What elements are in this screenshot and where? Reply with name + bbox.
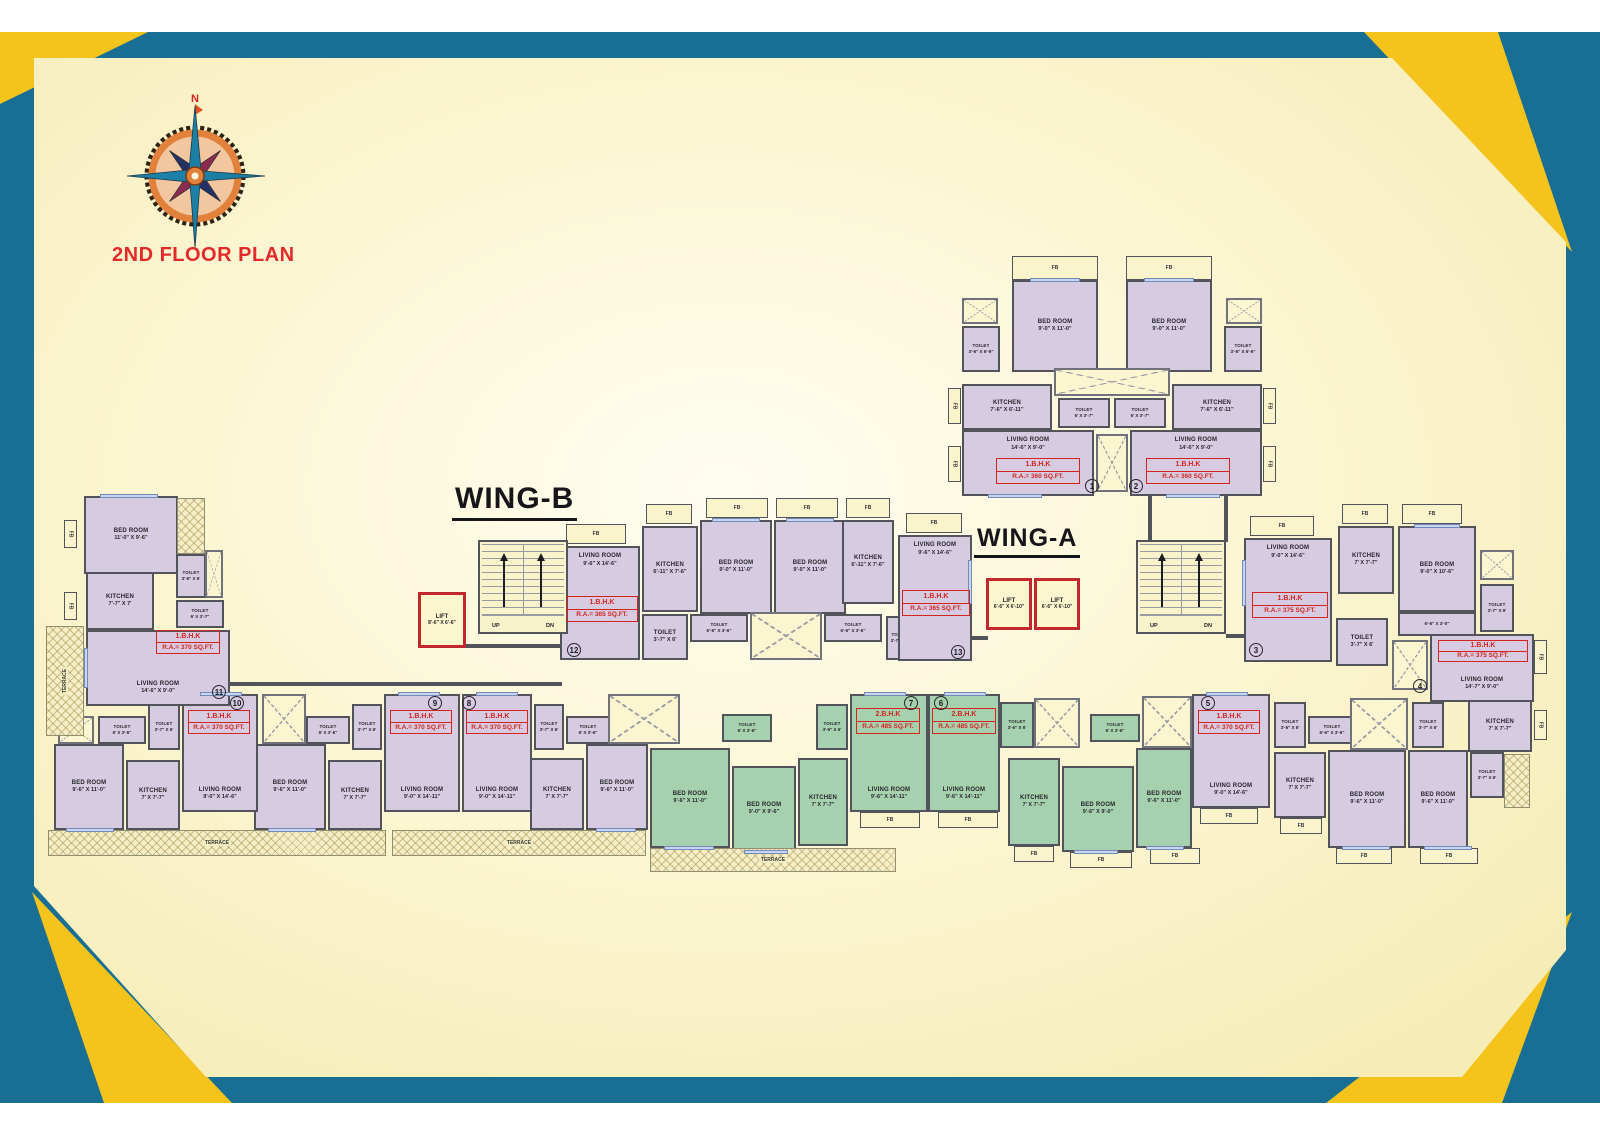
room-kitchen: KITCHEN7' X 7'-7" [1008,758,1060,846]
unit-number: 1 [1085,479,1099,493]
room-name: KITCHEN [139,788,167,796]
duct-shaft [205,550,223,598]
room-toilet: TOILET3'-6" X 6'-9" [962,326,1000,372]
up-arrow-icon [1198,556,1200,606]
unit-number: 6 [934,696,948,710]
room-dimensions: 7'-7" X 7' [109,601,132,608]
room-name: LIVING ROOM [137,681,180,689]
fb-label: FB [1166,265,1173,271]
stair-divider [523,544,524,616]
room-dimensions: 3'-6" X 6' [182,576,201,581]
room-bed-room: BED ROOM9'-6" X 11'-0" [1408,750,1468,848]
room-name: LIVING ROOM [1210,783,1253,791]
staircase: UPDN [1136,540,1226,634]
duct-cross-icon [1036,700,1078,746]
fb-label: FB [1429,511,1436,517]
window [1074,850,1118,854]
unit-number: 4 [1413,679,1427,693]
room-dimensions: 6' X 3'-6" [579,730,598,735]
up-arrow-icon [503,556,505,606]
unit-number: 5 [1201,696,1215,710]
unit-area-label: R.A.= 485 SQ.FT. [933,722,995,734]
fb-label: FB [1362,511,1369,517]
room-dimensions: 9'-6" X 11'-0" [600,787,633,794]
fb-label: FB [1537,654,1543,661]
room-dimensions: 3'-6" X 6' [1008,725,1027,730]
room-bed-room: BED ROOM9'-6" X 11'-0" [650,748,730,848]
room-dimensions: 6' X 3'-6" [738,728,757,733]
room-kitchen: KITCHEN7' X 7'-7" [328,760,382,830]
room-name: BED ROOM [600,780,635,788]
duct-shaft [608,694,680,744]
room-bed-room: BED ROOM9'-0" X 11'-0" [700,520,772,614]
room-dimensions: 14'-6" X 9'-0" [1011,445,1045,452]
fb-label: FB [1172,853,1179,859]
fb-label: FB [804,505,811,511]
window [268,828,316,832]
unit-number: 10 [230,696,244,710]
fb-window: FB [938,812,998,828]
room-toilet: TOILET6'-6" X 3'-6" [690,614,748,642]
duct-shaft [1142,696,1192,748]
fb-label: FB [951,461,957,468]
fb-label: FB [1446,853,1453,859]
area-tag: 1.B.H.KR.A.= 370 SQ.FT. [156,630,220,654]
duct-shaft [1226,298,1262,324]
stair-divider [1181,544,1182,616]
fb-window: FB [776,498,838,518]
room-dimensions: 7'-6" X 6'-11" [990,407,1023,414]
area-tag: 1.B.H.KR.A.= 365 SQ.FT. [566,596,638,622]
fb-label: FB [1298,823,1305,829]
unit-number: 2 [1129,479,1143,493]
room-name: BED ROOM [1152,319,1187,327]
room-name: BED ROOM [114,528,149,536]
room-dimensions: 9'-6" X 14'-11" [871,794,907,801]
unit-type-label: 1.B.H.K [1253,593,1327,606]
area-tag: 2.B.H.KR.A.= 485 SQ.FT. [932,708,996,734]
room-toilet: TOILET3'-7" X 6' [534,704,564,750]
area-tag: 2.B.H.KR.A.= 485 SQ.FT. [856,708,920,734]
room-dimensions: 6'-6" X 3'-6" [1320,730,1345,735]
room-name: KITCHEN [1020,795,1048,803]
room-toilet: TOILET6' X 3'-6" [1090,714,1140,742]
area-tag: 1.B.H.KR.A.= 360 SQ.FT. [1146,458,1230,484]
room-dimensions: 7'-6" X 6'-11" [1200,407,1233,414]
fb-window: FB [1420,848,1478,864]
room-toilet: TOILET3'-6" X 6'-9" [1224,326,1262,372]
window [1414,524,1460,528]
fb-window: FB [1263,388,1276,424]
stair-up-label: UP [492,623,500,629]
unit-area-label: R.A.= 375 SQ.FT. [1439,652,1527,662]
unit-type-label: 1.B.H.K [1147,459,1229,472]
window [744,850,788,854]
duct-shaft [1096,434,1128,492]
fb-window: FB [1070,852,1132,868]
room-kitchen: KITCHEN7' X 7'-7" [1338,526,1394,594]
fb-label: FB [1361,853,1368,859]
room-name: BED ROOM [1420,562,1455,570]
room-dimensions: 6' X 3'-6" [1106,728,1125,733]
room-name: KITCHEN [106,594,134,602]
window [786,518,834,522]
unit-area-label: R.A.= 365 SQ.FT. [567,610,637,622]
room-toilet: TOILET3'-6" X 6' [1000,702,1034,748]
room-dimensions: 9'-0" X 14'-6" [1271,553,1305,560]
fb-label: FB [67,603,73,610]
room-name: KITCHEN [993,400,1021,408]
room-dimensions: 6'-11" X 7'-6" [851,562,884,569]
room-kitchen: KITCHEN6'-11" X 7'-6" [642,526,698,612]
unit-type-label: 2.B.H.K [857,709,919,722]
wall [1148,496,1152,542]
window [596,828,636,832]
room-name: BED ROOM [673,791,708,799]
room-dimensions: 3'-7" X 6' [1478,775,1497,780]
duct-cross-icon [610,696,678,742]
fb-label: FB [1098,857,1105,863]
fb-window: FB [906,513,962,533]
unit-area-label: R.A.= 370 SQ.FT. [157,643,219,654]
terrace-label: TERRACE [759,857,787,863]
room-dimensions: 9'-0" X 11'-0" [793,567,826,574]
area-tag: 1.B.H.KR.A.= 370 SQ.FT. [466,710,528,734]
up-arrow-icon [540,556,542,606]
window [664,846,714,850]
room-dimensions: 14'-6" X 9'-0" [1179,445,1213,452]
room-bed-room: BED ROOM9'-6" X 11'-0" [254,744,326,830]
room-passage: 6'-6" X 3'-0" [1398,612,1476,636]
fb-window: FB [1250,516,1314,536]
window [1146,846,1184,850]
room-dimensions: 3'-7" X 6' [358,727,377,732]
unit-number: 7 [904,696,918,710]
stair-down-label: DN [1204,623,1212,629]
room-name: LIVING ROOM [868,787,911,795]
room-dimensions: 6'-11" X 7'-6" [653,569,686,576]
unit-area-label: R.A.= 370 SQ.FT. [467,723,527,734]
area-tag: 1.B.H.KR.A.= 370 SQ.FT. [390,710,452,734]
room-toilet: TOILET3'-6" X 6' [176,554,206,598]
unit-number: 3 [1249,643,1263,657]
room-kitchen: KITCHEN7'-7" X 7' [86,572,154,630]
room-name: KITCHEN [1286,778,1314,786]
room-dimensions: 14'-6" X 9'-0" [141,688,175,695]
room-toilet: TOILET6' X 3'-6" [722,714,772,742]
unit-type-label: 1.B.H.K [467,711,527,723]
duct-shaft [1350,698,1408,750]
room-kitchen: KITCHEN7'-6" X 6'-11" [962,384,1052,430]
fb-window: FB [706,498,768,518]
terrace-label: TERRACE [203,840,231,846]
fb-label: FB [1266,461,1272,468]
room-name: TOILET [1351,635,1373,643]
fb-window: FB [566,524,626,544]
terrace-label: TERRACE [62,667,68,695]
room-dimensions: 9'-0" X 11'-0" [1038,326,1071,333]
unit-type-label: 1.B.H.K [567,597,637,610]
room-name: KITCHEN [1352,553,1380,561]
fb-label: FB [666,511,673,517]
wall [1224,496,1228,542]
room-kitchen: KITCHEN7' X 7'-7" [1468,700,1532,752]
room-dimensions: 9'-0" X 11'-0" [719,567,752,574]
wall [1226,634,1246,638]
unit-number: 9 [428,696,442,710]
lift-dimensions: 8'-6" X 6'-6" [428,620,456,626]
room-dimensions: 6' X 3'-7" [1075,413,1094,418]
unit-area-label: R.A.= 370 SQ.FT. [1199,723,1259,734]
unit-type-label: 1.B.H.K [997,459,1079,472]
room-name: BED ROOM [719,560,754,568]
room-toilet: TOILET3'-7" X 6' [1412,702,1444,748]
terrace [1504,754,1530,808]
room-toilet: TOILET3'-7" X 6' [1470,752,1504,798]
fb-window: FB [948,388,961,424]
fb-window: FB [1342,504,1388,524]
wall [466,644,562,648]
window [1242,560,1246,606]
room-name: LIVING ROOM [1007,437,1050,445]
room-dimensions: 9'-6" X 11'-0" [72,787,105,794]
window [712,518,760,522]
fb-label: FB [1052,265,1059,271]
window [944,692,986,696]
area-tag: 1.B.H.KR.A.= 375 SQ.FT. [1252,592,1328,618]
room-dimensions: 9'-0" X 14'-11" [404,794,440,801]
room-bed-room: BED ROOM9'-0" X 10'-6" [1398,526,1476,612]
unit-area-label: R.A.= 360 SQ.FT. [997,472,1079,484]
stair-up-label: UP [1150,623,1158,629]
unit-area-label: R.A.= 360 SQ.FT. [1147,472,1229,484]
fb-label: FB [965,817,972,823]
window [1206,692,1248,696]
room-bed-room: BED ROOM9'-6" X 11'-0" [1328,750,1406,848]
duct-shaft [750,612,822,660]
unit-area-label: R.A.= 375 SQ.FT. [1253,606,1327,618]
fb-label: FB [734,505,741,511]
room-dimensions: 6' X 3'-7" [191,614,210,619]
fb-label: FB [865,505,872,511]
room-kitchen: KITCHEN7'-6" X 6'-11" [1172,384,1262,430]
fb-window: FB [1402,504,1462,524]
plan-layer: BED ROOM9'-0" X 11'-0"BED ROOM9'-0" X 11… [0,0,1600,1131]
room-name: KITCHEN [1486,719,1514,727]
unit-number: 11 [212,685,226,699]
fb-label: FB [593,531,600,537]
room-toilet: TOILET3'-6" X 6' [816,704,848,750]
staircase: UPDN [478,540,568,634]
fb-window: FB [1150,848,1200,864]
window [864,692,906,696]
room-bed-room: BED ROOM9'-6" X 11'-0" [54,744,124,830]
duct-shaft [1480,550,1514,580]
terrace: TERRACE [48,830,386,856]
room-dimensions: 3'-7" X 6' [654,637,677,644]
duct-cross-icon [1056,370,1168,394]
room-dimensions: 7' X 7'-7" [1489,726,1512,733]
fb-window: FB [1012,256,1098,280]
area-tag: 1.B.H.KR.A.= 375 SQ.FT. [1438,640,1528,662]
duct-cross-icon [264,696,304,742]
room-dimensions: 7' X 7'-7" [1023,802,1046,809]
fb-label: FB [931,520,938,526]
lift: LIFT6'-6" X 6'-10" [1034,578,1080,630]
room-dimensions: 7' X 7'-7" [1289,785,1312,792]
room-name: BED ROOM [1421,792,1456,800]
area-tag: 1.B.H.KR.A.= 370 SQ.FT. [188,710,250,734]
room-dimensions: 9'-6" X 14'-11" [946,794,982,801]
fb-label: FB [1031,851,1038,857]
room-bed-room: BED ROOM9'-0" X 11'-0" [774,520,846,614]
room-dimensions: 3'-7" X 6' [155,727,174,732]
room-name: BED ROOM [747,802,782,810]
room-dimensions: 6' X 3'-6" [113,730,132,735]
fb-window: FB [1200,808,1258,824]
fb-window: FB [1280,818,1322,834]
unit-type-label: 2.B.H.K [933,709,995,722]
fb-window: FB [1336,848,1392,864]
unit-number: 8 [462,696,476,710]
duct-shaft [1054,368,1170,396]
unit-type-label: 1.B.H.K [189,711,249,723]
duct-cross-icon [752,614,820,658]
room-toilet: TOILET3'-7" X 6' [1480,584,1514,632]
duct-cross-icon [964,300,996,322]
room-name: BED ROOM [1350,792,1385,800]
unit-type-label: 1.B.H.K [1199,711,1259,723]
room-kitchen: KITCHEN7' X 7'-7" [530,758,584,830]
room-dimensions: 9'-6" X 11'-0" [673,798,706,805]
window [1030,278,1080,282]
room-dimensions: 9'-0" X 9'-6" [749,809,779,816]
room-name: LIVING ROOM [476,787,519,795]
area-tag: 1.B.H.KR.A.= 360 SQ.FT. [996,458,1080,484]
room-dimensions: 3'-6" X 6'-9" [969,349,994,354]
area-tag: 1.B.H.KR.A.= 370 SQ.FT. [1198,710,1260,734]
room-name: LIVING ROOM [401,787,444,795]
room-toilet: TOILET6'-6" X 3'-6" [1308,716,1356,744]
terrace: TERRACE [46,626,84,736]
window [1144,278,1194,282]
room-bed-room: BED ROOM9'-0" X 11'-0" [1126,280,1212,372]
duct-shaft [1034,698,1080,748]
terrace-label: TERRACE [505,840,533,846]
duct-shaft [262,694,306,744]
room-dimensions: 9'-0" X 10'-6" [1420,569,1454,576]
window [476,692,518,696]
fb-label: FB [887,817,894,823]
room-kitchen: KITCHEN6'-11" X 7'-6" [842,520,894,604]
duct-cross-icon [1098,436,1126,490]
room-dimensions: 7' X 7'-7" [812,802,835,809]
terrace: TERRACE [392,830,646,856]
fb-window: FB [1263,446,1276,482]
fb-window: FB [646,504,692,524]
room-dimensions: 6' X 3'-7" [1131,413,1150,418]
unit-area-label: R.A.= 370 SQ.FT. [391,723,451,734]
fb-label: FB [1266,403,1272,410]
fb-window: FB [1126,256,1212,280]
lift: LIFT6'-6" X 6'-10" [986,578,1032,630]
window [1166,494,1220,498]
fb-window: FB [860,812,920,828]
room-name: KITCHEN [854,555,882,563]
room-name: LIVING ROOM [199,787,242,795]
room-name: BED ROOM [1081,802,1116,810]
fb-window: FB [1534,710,1547,740]
unit-area-label: R.A.= 485 SQ.FT. [857,722,919,734]
terrace [177,498,205,554]
room-kitchen: KITCHEN7' X 7'-7" [798,758,848,846]
room-name: BED ROOM [793,560,828,568]
room-dimensions: 3'-7" X 6' [1351,642,1374,649]
room-toilet: TOILET3'-7" X 6' [352,704,382,750]
room-bed-room: BED ROOM9'-0" X 11'-0" [1012,280,1098,372]
room-name: LIVING ROOM [943,787,986,795]
room-toilet: TOILET6' X 3'-7" [1058,398,1110,428]
room-toilet: TOILET6' X 3'-7" [176,600,224,628]
room-dimensions: 3'-6" X 6'-9" [1231,349,1256,354]
unit-number: 13 [951,645,965,659]
room-dimensions: 9'-6" X 14'-6" [918,550,952,557]
room-dimensions: 14'-7" X 9'-0" [1465,684,1499,691]
room-dimensions: 6'-6" X 3'-0" [1425,621,1450,626]
window [1342,846,1390,850]
room-name: LIVING ROOM [914,542,957,550]
fb-label: FB [1279,523,1286,529]
room-bed-room: BED ROOM9'-6" X 11'-0" [1136,748,1192,848]
room-name: BED ROOM [1147,791,1182,799]
room-dimensions: 9'-0" X 11'-0" [1152,326,1185,333]
fb-label: FB [67,531,73,538]
room-dimensions: 9'-6" X 11'-0" [273,787,306,794]
window [66,828,114,832]
room-name: KITCHEN [656,562,684,570]
room-dimensions: 3'-6" X 6' [823,727,842,732]
duct-cross-icon [207,552,221,596]
window [1424,846,1472,850]
room-name: TOILET [654,630,676,638]
fb-window: FB [1014,846,1054,862]
room-dimensions: 9'-6" X 11'-0" [1147,798,1180,805]
duct-shaft [962,298,998,324]
fb-window: FB [64,520,77,548]
up-arrow-icon [1161,556,1163,606]
room-name: LIVING ROOM [1267,545,1310,553]
room-toilet: TOILET6'-6" X 3'-6" [824,614,882,642]
room-name: KITCHEN [809,795,837,803]
room-dimensions: 7' X 7'-7" [546,794,569,801]
duct-cross-icon [1144,698,1190,746]
unit-type-label: 1.B.H.K [1439,641,1527,652]
duct-cross-icon [1228,300,1260,322]
room-dimensions: 3'-7" X 6' [540,727,559,732]
unit-type-label: 1.B.H.K [903,591,969,604]
room-name: LIVING ROOM [1175,437,1218,445]
wall [230,682,562,686]
room-toilet: TOILET3'-7" X 6' [148,704,180,750]
room-bed-room: BED ROOM9'-0" X 9'-6" [732,766,796,852]
fb-window: FB [846,498,890,518]
floor-plan-page: N 2ND FLOOR PLAN WING-B WING-A BED ROOM9… [0,0,1600,1131]
room-name: KITCHEN [543,787,571,795]
room-dimensions: 9'-6" X 9'-0" [1083,809,1113,816]
room-dimensions: 9'-0" X 14'-6" [203,794,237,801]
room-bed-room: BED ROOM11'-0" X 9'-6" [84,496,178,574]
window [84,648,88,688]
